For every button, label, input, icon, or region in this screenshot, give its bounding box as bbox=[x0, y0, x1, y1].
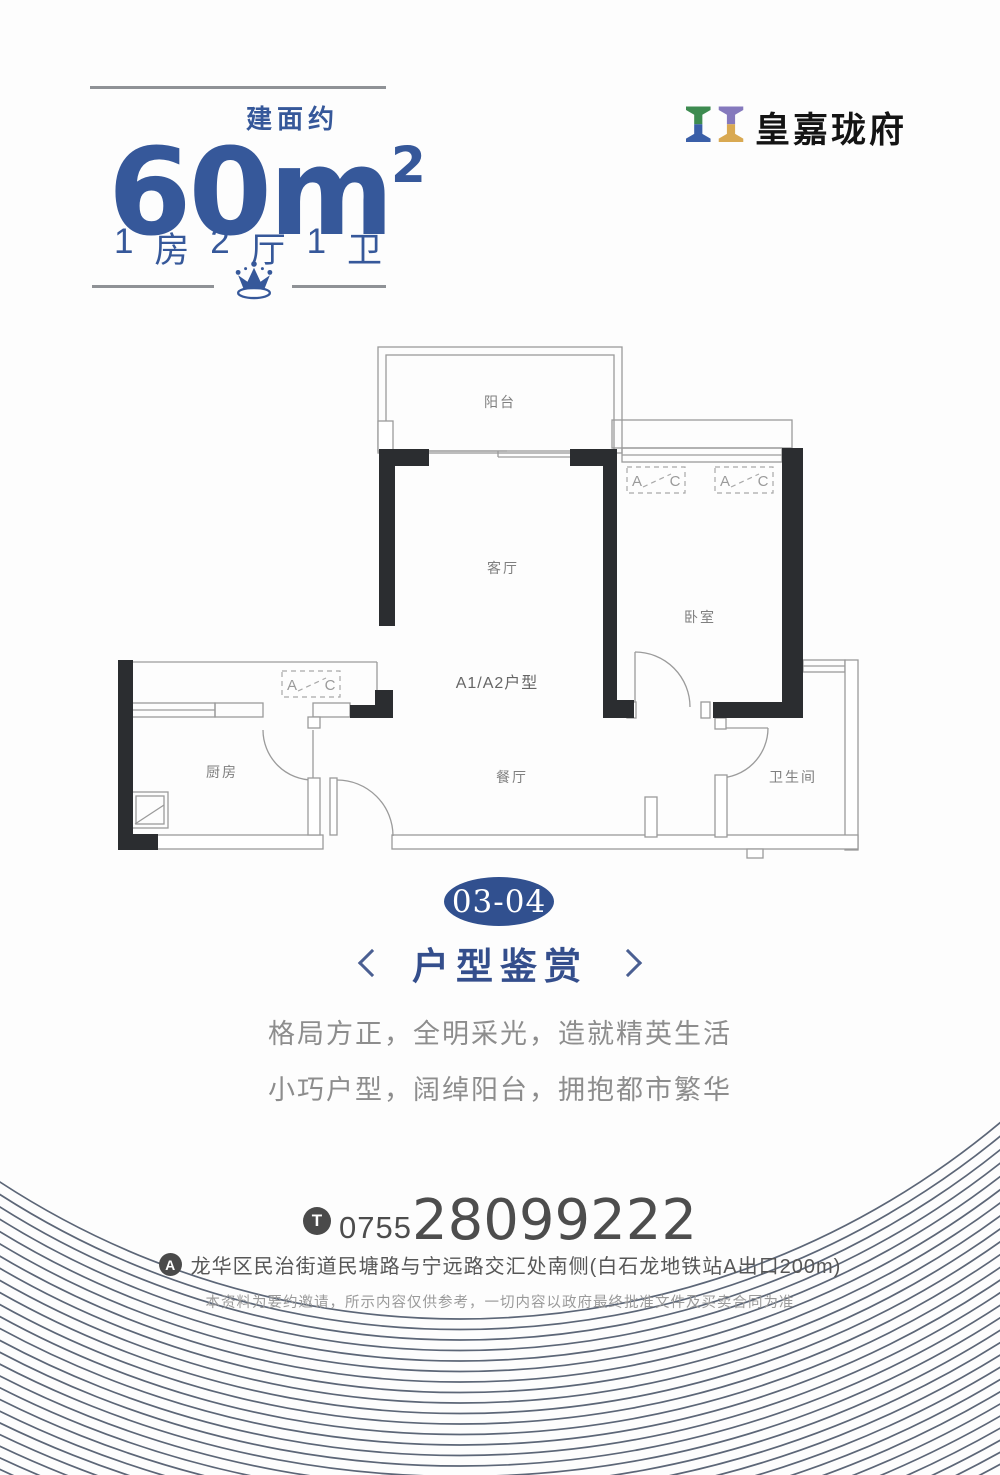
ac-unit-box: A C bbox=[627, 467, 685, 493]
room-label-bedroom: 卧室 bbox=[684, 609, 716, 625]
kitchen-door-arc bbox=[263, 730, 313, 780]
kitchen-sink bbox=[132, 792, 168, 828]
area-superscript: 2 bbox=[391, 136, 426, 194]
room-label-living: 客厅 bbox=[487, 560, 519, 576]
phone-row: T 0755 28099222 bbox=[0, 1188, 1000, 1253]
header-top-rule bbox=[90, 86, 386, 89]
brand-name: 皇嘉珑府 bbox=[755, 102, 907, 153]
ac-unit-box: A C bbox=[715, 467, 773, 493]
brand-logo: 皇嘉珑府 bbox=[686, 100, 907, 154]
room-label-dining: 餐厅 bbox=[496, 769, 528, 785]
outer-wall-bottom-right bbox=[392, 835, 858, 849]
svg-text:A: A bbox=[720, 473, 730, 490]
wall-stub bbox=[715, 775, 727, 837]
outer-wall-bottom-left bbox=[132, 835, 323, 849]
ac-unit-box: A C bbox=[282, 671, 340, 697]
bathroom-door-arc bbox=[715, 718, 768, 778]
room-label-kitchen: 厨房 bbox=[206, 764, 238, 780]
entry-door bbox=[308, 778, 393, 836]
address-text: 龙华区民治街道民塘路与宁远路交汇处南侧(白石龙地铁站A出口200m) bbox=[191, 1250, 842, 1279]
svg-text:A: A bbox=[632, 473, 642, 490]
svg-text:C: C bbox=[758, 473, 769, 490]
description-line-1: 格局方正，全明采光，造就精英生活 bbox=[0, 1012, 1000, 1051]
chevron-right-icon bbox=[358, 949, 386, 977]
crown-icon bbox=[226, 256, 282, 300]
phone-icon: T bbox=[303, 1207, 331, 1235]
section-title: 户型鉴赏 bbox=[412, 936, 588, 990]
room-label-bathroom: 卫生间 bbox=[769, 769, 817, 785]
chevron-left-icon bbox=[614, 949, 642, 977]
bedroom-platform bbox=[612, 420, 792, 448]
brand-logo-icon bbox=[686, 100, 746, 154]
structural-walls bbox=[118, 448, 803, 850]
room-label-balcony: 阳台 bbox=[484, 394, 516, 410]
unit-number-badge: 03-04 bbox=[444, 877, 554, 926]
balcony-sliding-door bbox=[429, 451, 570, 457]
location-icon: A bbox=[159, 1253, 182, 1276]
svg-text:C: C bbox=[325, 677, 336, 694]
unit-type-label: A1/A2户型 bbox=[456, 674, 539, 692]
phone-number: 28099222 bbox=[412, 1188, 697, 1253]
outer-wall-right bbox=[845, 660, 858, 850]
wall-stub bbox=[645, 797, 657, 837]
bedroom-door-arc bbox=[627, 652, 710, 718]
bottom-notch bbox=[747, 849, 763, 858]
header-bottom-rule-left bbox=[92, 285, 214, 288]
bedroom-window bbox=[622, 448, 782, 462]
svg-text:A: A bbox=[287, 677, 297, 694]
disclaimer-text: 本资料为要约邀请，所示内容仅供参考，一切内容以政府最终批准文件及买卖合同为准 bbox=[0, 1291, 1000, 1312]
address-row: A 龙华区民治街道民塘路与宁远路交汇处南侧(白石龙地铁站A出口200m) bbox=[0, 1250, 1000, 1279]
svg-text:C: C bbox=[670, 473, 681, 490]
section-heading: 户型鉴赏 bbox=[0, 936, 1000, 990]
description-line-2: 小巧户型，阔绰阳台，拥抱都市繁华 bbox=[0, 1068, 1000, 1107]
floorplan-diagram: A C A C A C 阳台 客厅 A1/A2户型 餐厅 厨房 卧室 卫生间 bbox=[115, 345, 875, 875]
header-bottom-rule-right bbox=[292, 285, 386, 288]
phone-area-code: 0755 bbox=[339, 1210, 412, 1246]
side-window bbox=[803, 660, 845, 672]
